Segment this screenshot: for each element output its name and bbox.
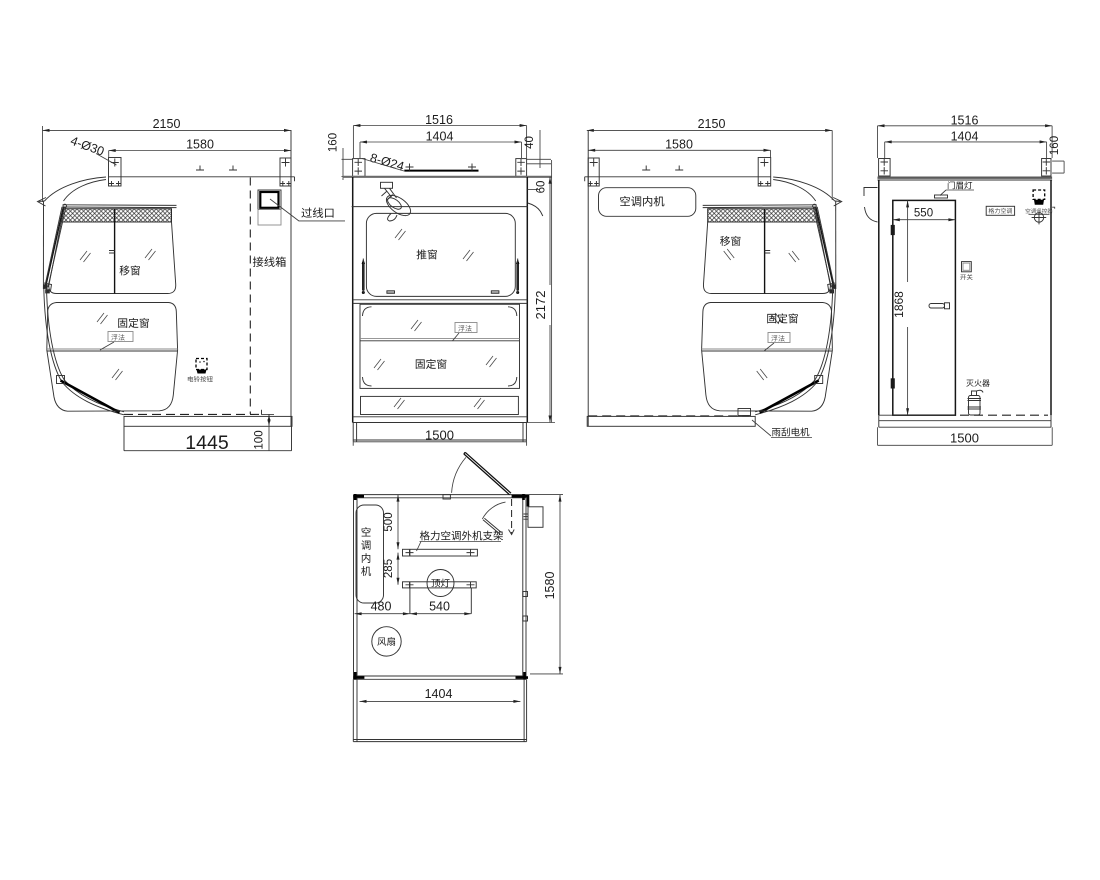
svg-text:2150: 2150 [153,117,181,131]
svg-text:540: 540 [429,600,450,614]
svg-text:1516: 1516 [951,114,979,128]
svg-text:1868: 1868 [892,291,906,318]
svg-text:1500: 1500 [425,428,454,443]
svg-text:2150: 2150 [698,117,726,131]
svg-text:1404: 1404 [951,130,979,144]
svg-text:1580: 1580 [543,572,557,600]
svg-text:1445: 1445 [185,432,229,454]
svg-text:1500: 1500 [950,431,979,446]
svg-text:500: 500 [383,512,395,531]
svg-text:40: 40 [524,136,536,149]
svg-text:1580: 1580 [186,138,214,152]
svg-text:550: 550 [914,208,933,220]
svg-text:480: 480 [371,600,392,614]
svg-text:60: 60 [536,181,548,194]
svg-text:1404: 1404 [426,130,454,144]
svg-text:160: 160 [328,133,340,152]
svg-text:100: 100 [254,430,266,449]
svg-text:2172: 2172 [533,291,548,320]
svg-text:1516: 1516 [425,113,453,127]
svg-text:1404: 1404 [425,687,453,701]
svg-text:1580: 1580 [665,138,693,152]
svg-text:160: 160 [1049,136,1061,155]
svg-text:285: 285 [383,559,395,578]
